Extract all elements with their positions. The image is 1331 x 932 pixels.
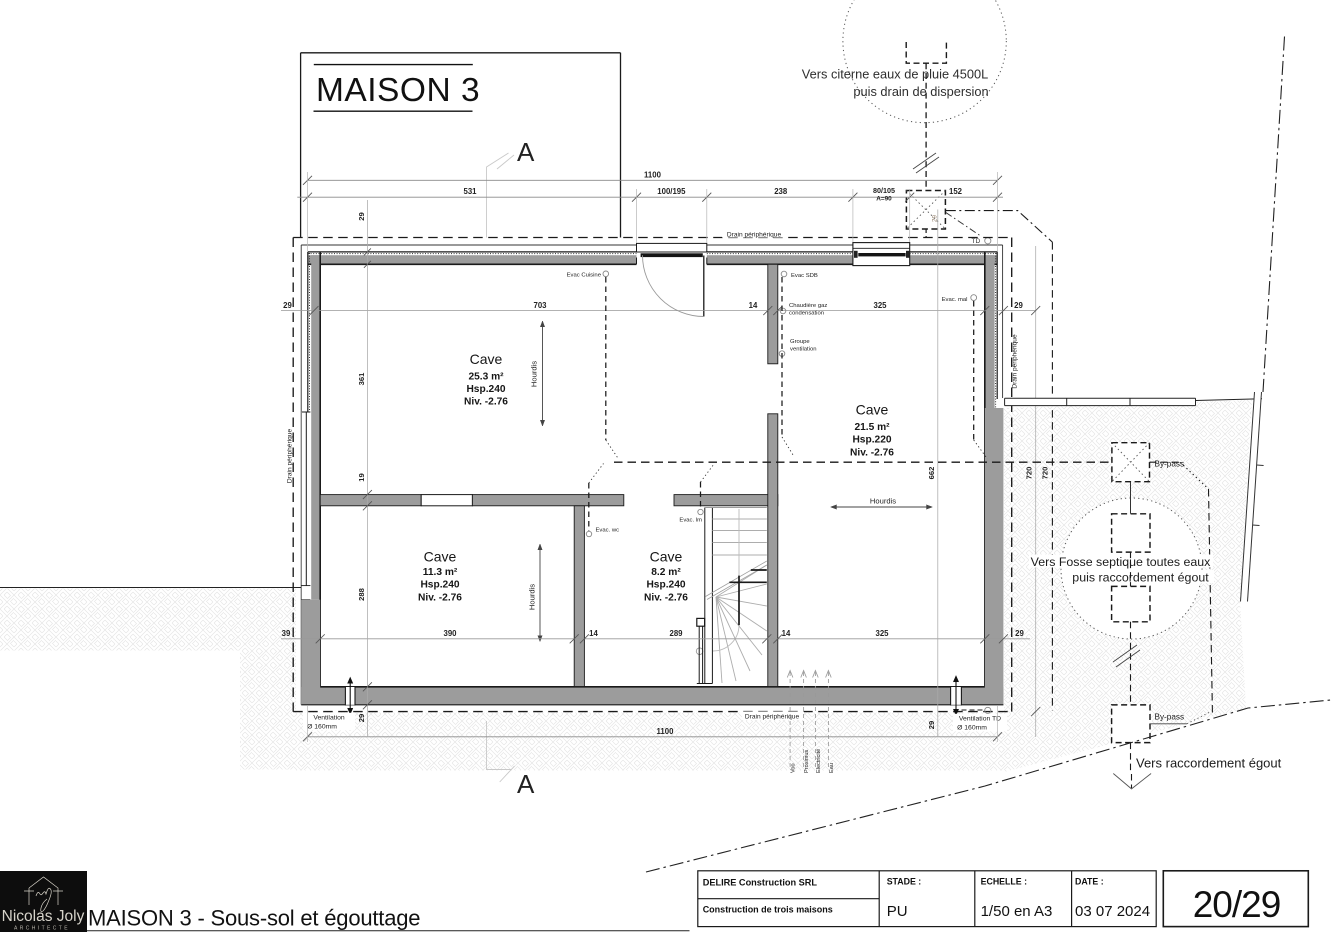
svg-text:Ventilation: Ventilation	[313, 715, 345, 722]
svg-text:Niv. -2.76: Niv. -2.76	[644, 592, 688, 603]
svg-text:14: 14	[589, 629, 598, 638]
svg-text:14: 14	[782, 629, 791, 638]
svg-text:20/29: 20/29	[1193, 884, 1281, 925]
svg-text:100/195: 100/195	[657, 187, 686, 196]
svg-text:Cave: Cave	[650, 549, 683, 565]
svg-text:14: 14	[749, 301, 758, 310]
svg-text:Drain périphérique: Drain périphérique	[745, 714, 800, 721]
svg-text:Eau: Eau	[829, 763, 835, 773]
svg-text:Ø 160mm: Ø 160mm	[307, 724, 337, 731]
svg-text:03 07 2024: 03 07 2024	[1075, 903, 1150, 920]
svg-text:25.3 m²: 25.3 m²	[468, 372, 504, 383]
svg-text:ARCHITECTE: ARCHITECTE	[14, 926, 70, 932]
svg-text:Proximus: Proximus	[804, 749, 810, 773]
svg-text:Evac Cuisine: Evac Cuisine	[567, 273, 602, 279]
svg-text:Evac. lm: Evac. lm	[679, 518, 702, 524]
svg-text:Ø 160mm: Ø 160mm	[957, 725, 987, 732]
svg-text:Vers raccordement égout: Vers raccordement égout	[1136, 756, 1282, 771]
svg-text:Evac. mal: Evac. mal	[942, 297, 968, 303]
svg-text:Electricité: Electricité	[816, 749, 822, 773]
svg-text:29: 29	[927, 721, 936, 729]
svg-text:29: 29	[283, 301, 292, 310]
svg-text:Evac SDB: Evac SDB	[791, 273, 818, 279]
svg-text:662: 662	[927, 467, 936, 480]
svg-text:A: A	[517, 137, 535, 167]
svg-text:ECHELLE :: ECHELLE :	[981, 876, 1027, 886]
svg-text:puis raccordement égout: puis raccordement égout	[1072, 571, 1209, 585]
svg-text:Drain périphérique: Drain périphérique	[287, 429, 294, 484]
svg-text:289: 289	[669, 629, 683, 638]
svg-text:Evac. wc: Evac. wc	[596, 528, 620, 534]
svg-text:11.3 m²: 11.3 m²	[423, 567, 458, 578]
svg-text:8.2 m²: 8.2 m²	[651, 567, 681, 578]
svg-text:19: 19	[357, 473, 366, 481]
svg-text:Construction de trois maisons: Construction de trois maisons	[703, 905, 833, 915]
svg-text:29: 29	[357, 714, 366, 722]
svg-text:ventilation: ventilation	[790, 347, 817, 353]
svg-text:TD: TD	[972, 238, 981, 245]
svg-text:Vers Fosse septique toutes eau: Vers Fosse septique toutes eaux	[1031, 555, 1212, 569]
svg-text:PU: PU	[887, 903, 908, 920]
svg-text:A: A	[517, 769, 535, 799]
svg-text:531: 531	[463, 187, 477, 196]
svg-text:Cave: Cave	[856, 402, 889, 418]
svg-text:325: 325	[873, 301, 887, 310]
svg-text:Vers citerne eaux de pluie 450: Vers citerne eaux de pluie 4500L	[802, 67, 988, 82]
svg-text:29: 29	[1014, 301, 1023, 310]
svg-text:Cave: Cave	[470, 351, 503, 367]
svg-text:Ventilation TD: Ventilation TD	[959, 716, 1001, 723]
svg-text:STADE :: STADE :	[887, 876, 922, 886]
svg-text:Drain périphérique: Drain périphérique	[727, 232, 782, 239]
svg-text:Drain périphérique: Drain périphérique	[1012, 334, 1019, 389]
svg-text:1100: 1100	[657, 727, 675, 736]
svg-text:Hourdis: Hourdis	[530, 361, 539, 387]
svg-text:A=90: A=90	[876, 196, 892, 203]
svg-text:By-pass: By-pass	[1155, 713, 1185, 722]
svg-text:720: 720	[1025, 467, 1034, 480]
svg-text:288: 288	[357, 588, 366, 601]
svg-text:Chaudière gaz: Chaudière gaz	[789, 303, 827, 309]
svg-text:Niv. -2.76: Niv. -2.76	[464, 396, 508, 407]
svg-text:Hsp.240: Hsp.240	[466, 384, 505, 395]
svg-text:39: 39	[282, 629, 291, 638]
svg-text:DATE :: DATE :	[1075, 876, 1104, 886]
svg-text:720: 720	[1041, 467, 1050, 480]
svg-text:29: 29	[1015, 629, 1024, 638]
svg-text:Hsp.240: Hsp.240	[646, 580, 685, 591]
svg-text:325: 325	[875, 629, 889, 638]
svg-text:703: 703	[533, 301, 547, 310]
svg-text:Groupe: Groupe	[790, 339, 810, 345]
svg-text:DELIRE Construction SRL: DELIRE Construction SRL	[703, 877, 818, 887]
svg-text:Hourdis: Hourdis	[528, 584, 537, 610]
svg-text:Nicolas Joly: Nicolas Joly	[2, 908, 85, 925]
svg-text:MAISON 3 - Sous-sol et égoutta: MAISON 3 - Sous-sol et égouttage	[88, 906, 420, 931]
svg-text:21.5 m²: 21.5 m²	[854, 422, 890, 433]
svg-text:MAISON 3: MAISON 3	[316, 72, 480, 109]
svg-text:29: 29	[357, 212, 366, 220]
svg-text:By-pass: By-pass	[1155, 460, 1185, 469]
svg-text:puis drain de dispersion: puis drain de dispersion	[853, 84, 988, 99]
svg-text:Hsp.240: Hsp.240	[420, 580, 459, 591]
svg-text:361: 361	[357, 372, 366, 385]
svg-text:80/105: 80/105	[873, 186, 895, 195]
svg-text:Niv. -2.76: Niv. -2.76	[850, 447, 894, 458]
svg-text:Voo: Voo	[791, 763, 797, 773]
svg-text:390: 390	[443, 629, 457, 638]
svg-text:1/50 en A3: 1/50 en A3	[981, 903, 1053, 920]
svg-text:condensation: condensation	[789, 311, 824, 317]
svg-text:Hsp.220: Hsp.220	[852, 434, 891, 445]
svg-text:152: 152	[949, 187, 963, 196]
svg-text:Niv. -2.76: Niv. -2.76	[418, 592, 462, 603]
svg-text:Hourdis: Hourdis	[870, 497, 896, 506]
svg-text:Cave: Cave	[424, 549, 457, 565]
svg-text:1100: 1100	[644, 171, 662, 180]
svg-text:238: 238	[774, 187, 788, 196]
